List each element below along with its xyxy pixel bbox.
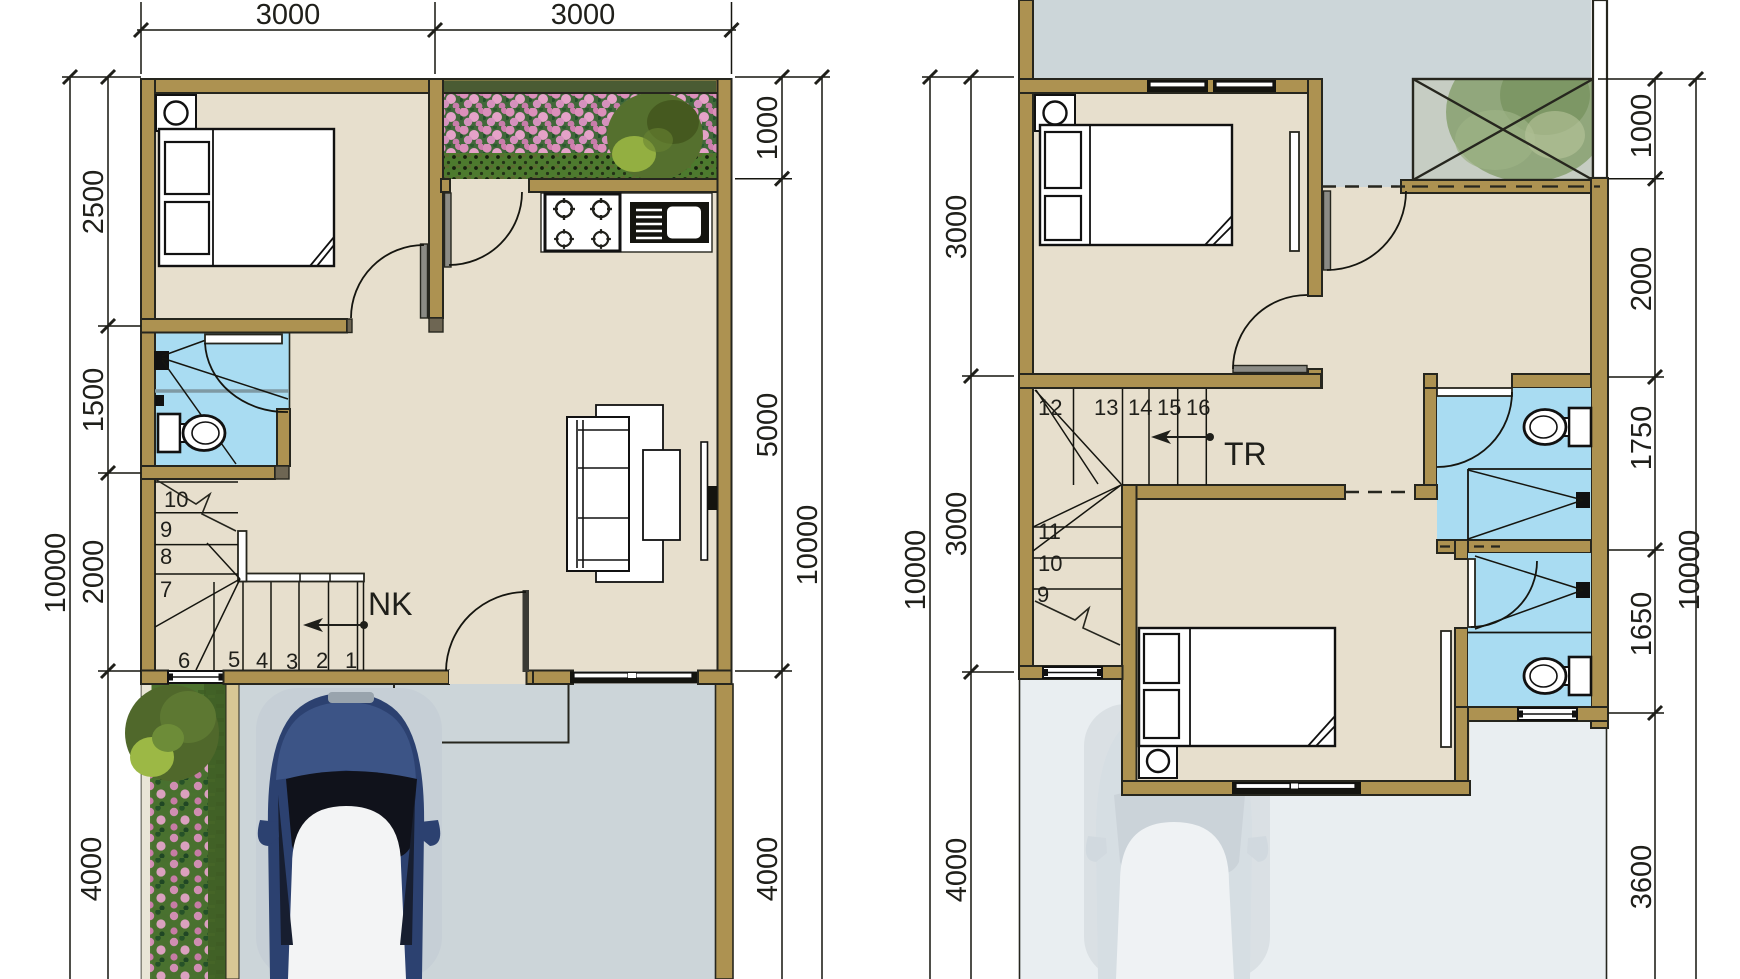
svg-text:2000: 2000 [78, 540, 110, 605]
svg-text:10: 10 [1038, 551, 1062, 576]
svg-text:TR: TR [1224, 436, 1267, 472]
svg-text:14: 14 [1128, 395, 1152, 420]
svg-text:4000: 4000 [752, 837, 784, 902]
svg-text:4000: 4000 [941, 838, 973, 903]
svg-text:15: 15 [1157, 395, 1181, 420]
svg-text:4: 4 [256, 648, 268, 673]
svg-text:3000: 3000 [941, 492, 973, 557]
svg-text:8: 8 [160, 544, 172, 569]
svg-text:4000: 4000 [76, 837, 108, 902]
svg-text:3600: 3600 [1626, 845, 1658, 910]
svg-text:3000: 3000 [256, 0, 321, 31]
svg-text:10000: 10000 [792, 505, 824, 586]
svg-text:10000: 10000 [40, 533, 72, 614]
svg-text:2500: 2500 [78, 170, 110, 235]
svg-text:10000: 10000 [900, 530, 932, 611]
svg-text:6: 6 [178, 648, 190, 673]
svg-text:10000: 10000 [1674, 530, 1706, 611]
svg-text:1650: 1650 [1626, 592, 1658, 657]
svg-text:9: 9 [1037, 582, 1049, 607]
svg-text:13: 13 [1094, 395, 1118, 420]
svg-text:5000: 5000 [752, 393, 784, 458]
svg-text:NK: NK [368, 586, 412, 622]
svg-text:3: 3 [286, 649, 298, 674]
svg-text:9: 9 [160, 517, 172, 542]
svg-text:2000: 2000 [1626, 247, 1658, 312]
svg-text:1: 1 [345, 648, 357, 673]
svg-text:1000: 1000 [752, 96, 784, 161]
svg-text:2: 2 [316, 648, 328, 673]
svg-text:5: 5 [228, 647, 240, 672]
svg-text:1500: 1500 [78, 368, 110, 433]
svg-text:11: 11 [1038, 519, 1061, 544]
svg-text:1000: 1000 [1626, 94, 1658, 159]
svg-text:3000: 3000 [551, 0, 616, 31]
svg-text:12: 12 [1038, 395, 1062, 420]
svg-text:10: 10 [164, 487, 188, 512]
svg-text:7: 7 [160, 577, 172, 602]
svg-text:16: 16 [1186, 395, 1210, 420]
svg-text:3000: 3000 [941, 195, 973, 260]
svg-text:1750: 1750 [1626, 406, 1658, 471]
